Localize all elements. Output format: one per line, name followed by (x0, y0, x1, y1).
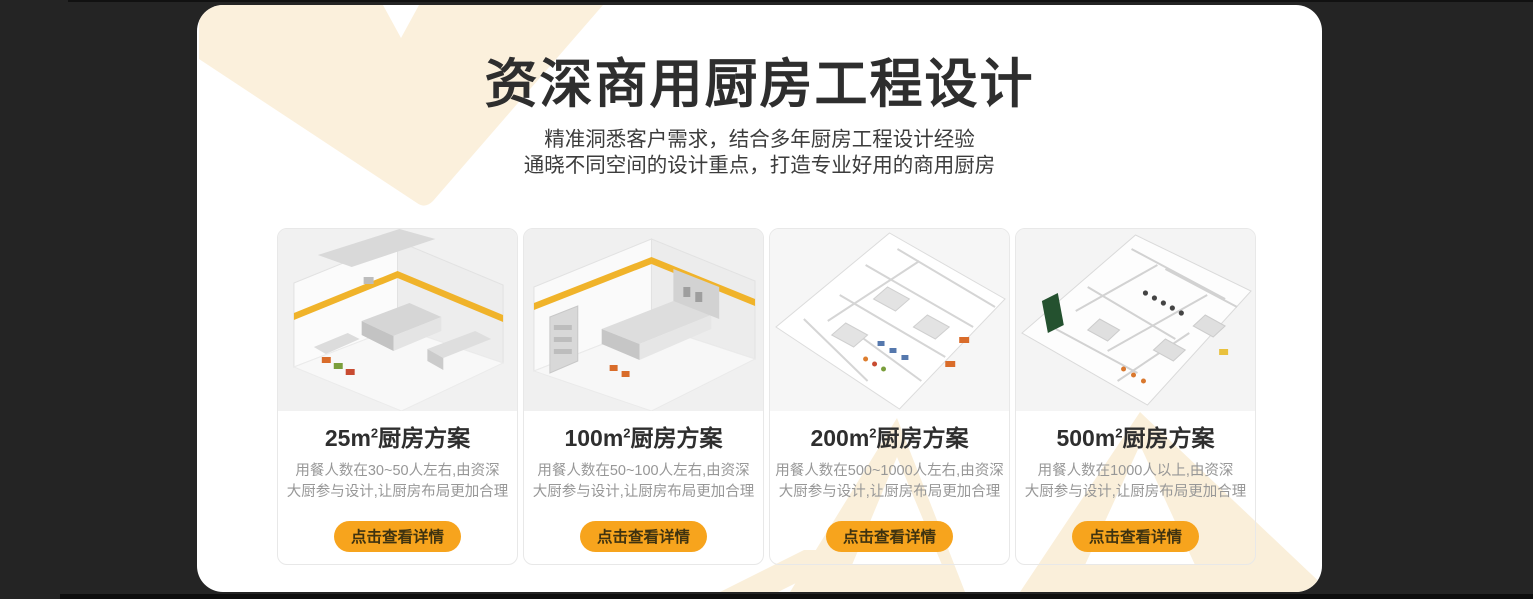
view-details-button[interactable]: 点击查看详情 (580, 521, 707, 552)
kitchen-isometric-render-25m2 (278, 229, 517, 411)
kitchen-isometric-render-500m2 (1016, 229, 1255, 411)
card-title: 500m2厨房方案 (1056, 425, 1214, 453)
kitchen-plan-card-25m2: 25m2厨房方案 用餐人数在30~50人左右,由资深 大厨参与设计,让厨房布局更… (277, 228, 518, 565)
kitchen-plan-card-100m2: 100m2厨房方案 用餐人数在50~100人左右,由资深 大厨参与设计,让厨房布… (523, 228, 764, 565)
kitchen-plan-card-500m2: 500m2厨房方案 用餐人数在1000人以上,由资深 大厨参与设计,让厨房布局更… (1015, 228, 1256, 565)
card-title: 200m2厨房方案 (810, 425, 968, 453)
card-description: 用餐人数在50~100人左右,由资深 大厨参与设计,让厨房布局更加合理 (533, 461, 755, 503)
card-title: 25m2厨房方案 (325, 425, 470, 453)
card-description: 用餐人数在500~1000人左右,由资深 大厨参与设计,让厨房布局更加合理 (775, 461, 1003, 503)
adjacent-section-bottom-edge (60, 594, 1533, 599)
adjacent-section-top-edge (68, 0, 1533, 2)
subtitle-line-2: 通晓不同空间的设计重点，打造专业好用的商用厨房 (197, 153, 1322, 179)
kitchen-isometric-render-200m2 (770, 229, 1009, 411)
view-details-button[interactable]: 点击查看详情 (334, 521, 461, 552)
kitchen-plan-card-row: 25m2厨房方案 用餐人数在30~50人左右,由资深 大厨参与设计,让厨房布局更… (277, 228, 1265, 565)
card-description: 用餐人数在1000人以上,由资深 大厨参与设计,让厨房布局更加合理 (1025, 461, 1247, 503)
page-background: { "section": { "title": "资深商用厨房工程设计", "s… (0, 0, 1533, 599)
kitchen-plan-card-200m2: 200m2厨房方案 用餐人数在500~1000人左右,由资深 大厨参与设计,让厨… (769, 228, 1010, 565)
view-details-button[interactable]: 点击查看详情 (1072, 521, 1199, 552)
subtitle-line-1: 精准洞悉客户需求，结合多年厨房工程设计经验 (197, 127, 1322, 153)
card-description: 用餐人数在30~50人左右,由资深 大厨参与设计,让厨房布局更加合理 (287, 461, 509, 503)
kitchen-isometric-render-100m2 (524, 229, 763, 411)
card-title: 100m2厨房方案 (564, 425, 722, 453)
view-details-button[interactable]: 点击查看详情 (826, 521, 953, 552)
section-subtitle: 精准洞悉客户需求，结合多年厨房工程设计经验 通晓不同空间的设计重点，打造专业好用… (197, 127, 1322, 179)
kitchen-design-section: 资深商用厨房工程设计 精准洞悉客户需求，结合多年厨房工程设计经验 通晓不同空间的… (197, 5, 1322, 592)
page-title: 资深商用厨房工程设计 (197, 55, 1322, 114)
